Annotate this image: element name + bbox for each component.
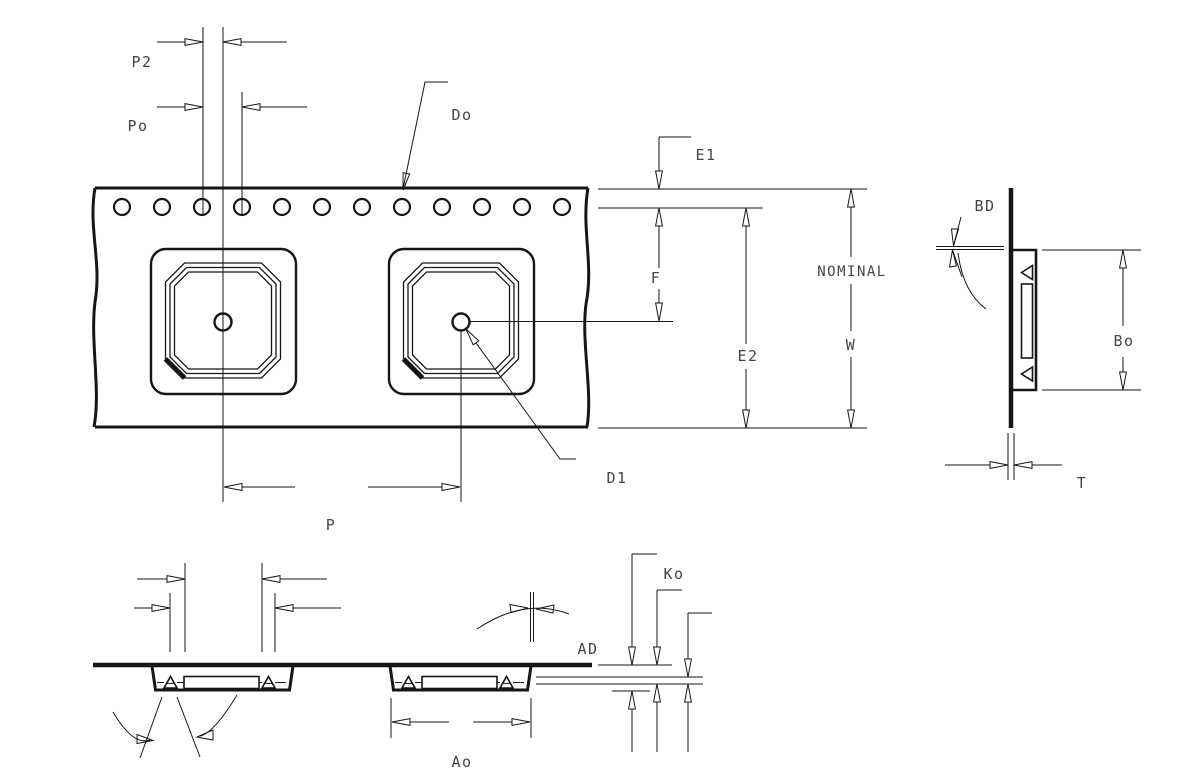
carrier-tape-drawing: P2 Po Do E1 NOMINAL F E2 W D1 P BD Bo T … (0, 0, 1200, 782)
side-pocket-bump (1022, 367, 1033, 381)
label-nominal: NOMINAL (817, 264, 887, 280)
extension-lines-right (598, 189, 867, 428)
arrowhead (262, 576, 280, 583)
sprocket-hole (434, 199, 450, 215)
draft-angle-dimension (113, 695, 237, 758)
arrowhead (242, 104, 260, 111)
arrowhead (275, 605, 293, 612)
dimension-w (848, 189, 855, 428)
label-p: P (326, 516, 337, 534)
arrowhead (197, 730, 213, 740)
arrowhead (224, 484, 242, 491)
arrowhead (743, 208, 750, 226)
sprocket-holes (114, 199, 570, 215)
arrowhead (1014, 462, 1032, 469)
label-t: T (1077, 474, 1088, 492)
section-pocket-1 (152, 666, 293, 690)
material-thickness-dimension (685, 613, 712, 752)
arrowhead (654, 684, 661, 702)
pocket-platform (422, 677, 497, 689)
label-ad: AD (577, 640, 598, 658)
arrowhead (392, 719, 410, 726)
dimension-p (224, 484, 460, 491)
arrowhead (743, 410, 750, 428)
dimension-po (157, 104, 307, 111)
centerlines (203, 27, 673, 502)
dimension-e2 (743, 208, 750, 428)
arrowhead (167, 576, 185, 583)
pocket-bump (164, 677, 177, 689)
pocket-platform (184, 677, 259, 689)
depth-extension-lines (536, 665, 703, 691)
arrowhead (137, 735, 153, 744)
arrowhead (848, 189, 855, 207)
label-bo: Bo (1113, 332, 1134, 350)
dimension-e1-f (656, 137, 691, 321)
label-e1: E1 (695, 146, 716, 164)
sprocket-hole (314, 199, 330, 215)
arrowhead (1120, 372, 1127, 390)
ad-angle-dimension (477, 592, 569, 642)
pocket-bump (402, 677, 415, 689)
pocket-bump (500, 677, 513, 689)
dimension-ao (391, 698, 531, 738)
sprocket-hole (114, 199, 130, 215)
label-ko: Ko (663, 565, 684, 583)
side-pocket-bump (1022, 266, 1033, 280)
sprocket-hole (194, 199, 210, 215)
arrowhead (629, 691, 636, 709)
arrowhead (442, 484, 460, 491)
leader-do (403, 82, 448, 190)
label-e2: E2 (737, 347, 758, 365)
sprocket-hole (154, 199, 170, 215)
arrowhead (656, 303, 663, 321)
arrowhead (656, 171, 663, 189)
arrowhead (990, 462, 1008, 469)
side-pocket-platform (1022, 284, 1033, 358)
overall-height-dimension (629, 554, 657, 752)
arrowhead (654, 647, 661, 665)
sprocket-hole (394, 199, 410, 215)
arrowhead (512, 719, 530, 726)
side-view (936, 188, 1141, 480)
arrowhead (223, 39, 241, 46)
tape-left-torn-edge (93, 188, 97, 427)
arrowhead (185, 104, 203, 111)
label-do: Do (451, 106, 472, 124)
dimension-bo (1042, 250, 1141, 390)
pocket-profile (152, 666, 293, 690)
arrowhead (466, 329, 479, 345)
pocket-bump (262, 677, 275, 689)
label-f: F (651, 269, 662, 287)
dimension-p2 (157, 39, 287, 46)
sprocket-hole (474, 199, 490, 215)
bd-angle-dimension (936, 217, 1004, 309)
label-ao: Ao (451, 753, 472, 771)
dimension-t (945, 433, 1062, 480)
label-po: Po (127, 117, 148, 135)
arrowhead (1120, 250, 1127, 268)
dimension-ko (654, 590, 682, 752)
sprocket-hole (274, 199, 290, 215)
arrowhead (848, 410, 855, 428)
sprocket-hole (514, 199, 530, 215)
arrowhead (685, 659, 692, 677)
arrowhead (152, 605, 170, 612)
pocket-2-center-hole (453, 314, 470, 331)
label-bd: BD (974, 197, 995, 215)
section-view (93, 554, 712, 758)
label-d1: D1 (606, 469, 627, 487)
arrowhead (656, 208, 663, 226)
sprocket-hole (354, 199, 370, 215)
arrowhead (629, 647, 636, 665)
pocket-profile (390, 666, 531, 690)
arrowhead (685, 684, 692, 702)
arrowhead (952, 229, 959, 246)
top-view (93, 27, 867, 502)
sprocket-hole (554, 199, 570, 215)
pocket-inner-width-dimensions (134, 563, 341, 652)
label-w: W (846, 336, 857, 354)
arrowhead (185, 39, 203, 46)
tape-right-torn-edge (585, 188, 589, 427)
label-p2: P2 (131, 53, 152, 71)
section-pocket-2 (390, 666, 531, 690)
drawing-page: P2 Po Do E1 NOMINAL F E2 W D1 P BD Bo T … (0, 0, 1200, 782)
